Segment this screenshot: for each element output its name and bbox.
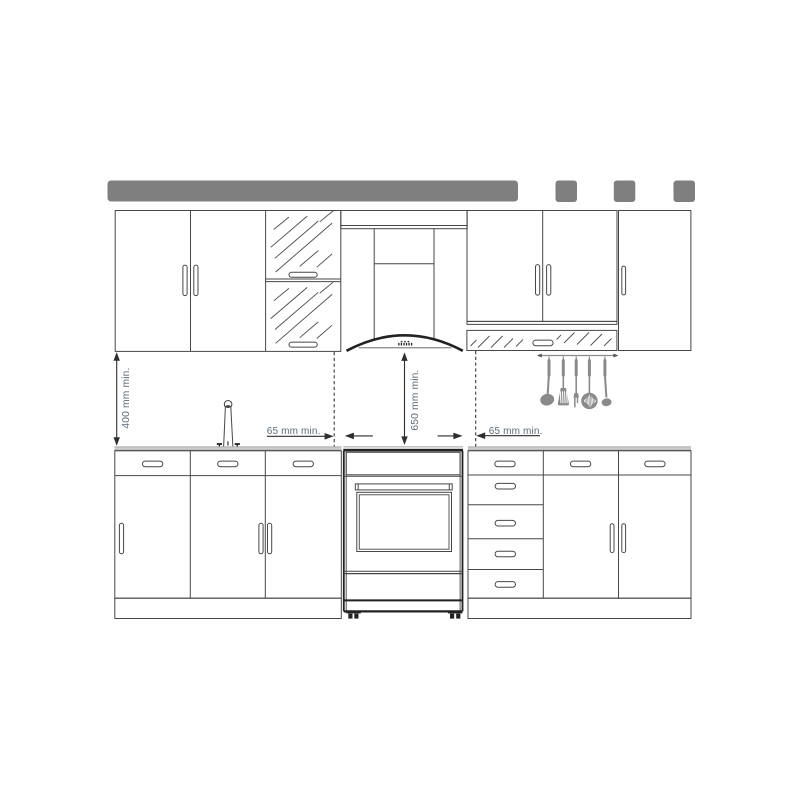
svg-text:65 mm min.: 65 mm min. (489, 426, 543, 437)
svg-text:650 mm min.: 650 mm min. (410, 369, 421, 430)
svg-text:400 mm min.: 400 mm min. (121, 367, 132, 428)
svg-text:65 mm min.: 65 mm min. (267, 426, 321, 437)
